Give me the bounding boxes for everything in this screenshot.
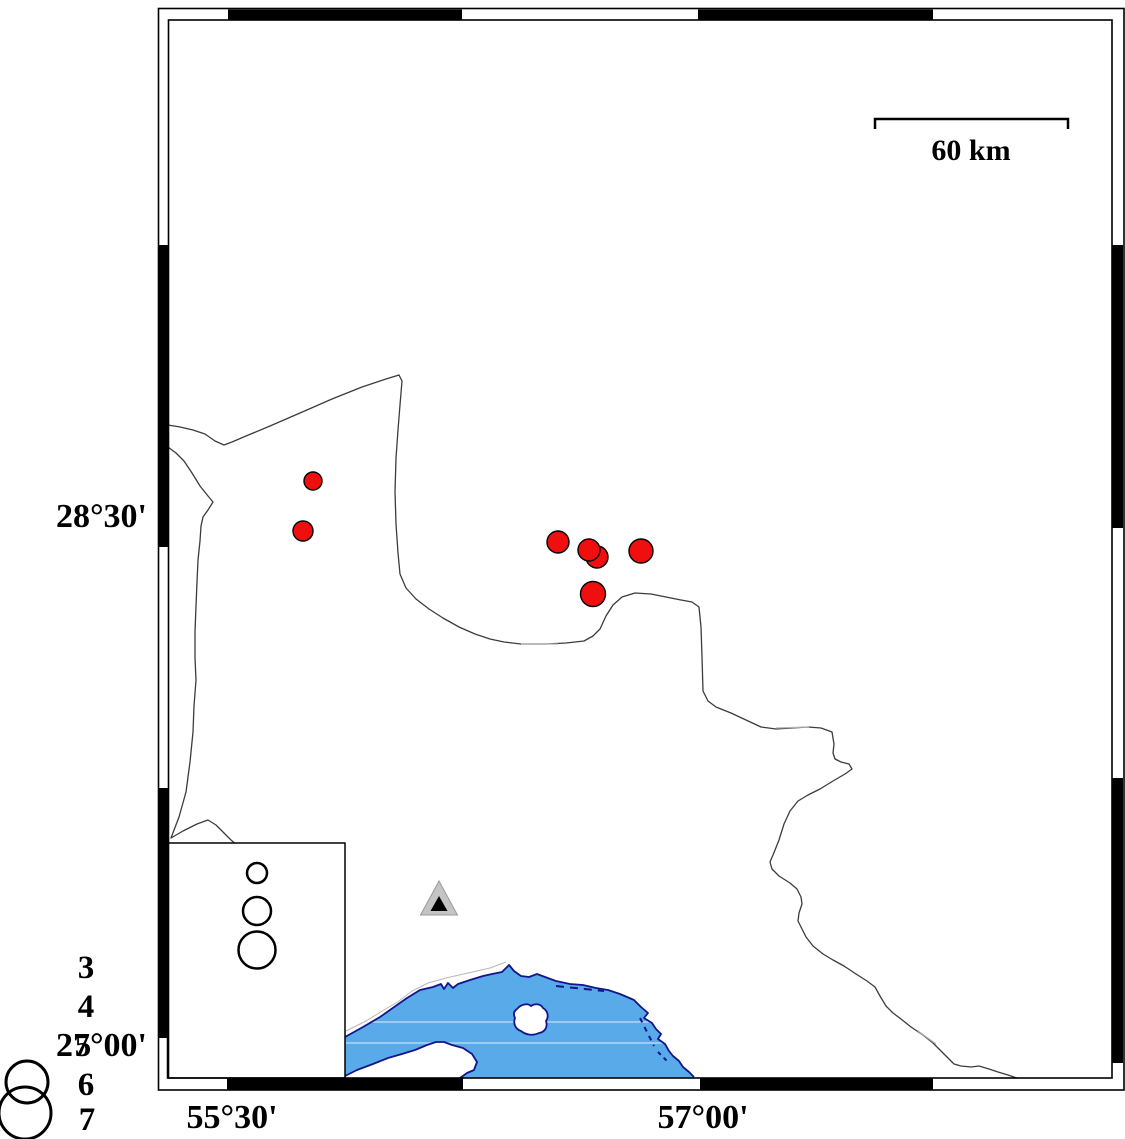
map-canvas: 60 km 3 4 5 6 7 28°30' 27°00' 55°30' 57°… — [0, 0, 1125, 1139]
map-figure: 60 km 3 4 5 6 7 28°30' 27°00' 55°30' 57°… — [0, 0, 1125, 1139]
legend-magnitude-circle — [0, 1087, 51, 1139]
frame-segment — [159, 788, 169, 1038]
frame-segment — [228, 10, 462, 21]
scale-bar-label: 60 km — [931, 134, 1010, 167]
frame-segment — [227, 1079, 463, 1090]
frame-segment — [698, 10, 933, 21]
lon-label-57-00: 57°00' — [657, 1099, 748, 1136]
sea-region — [345, 962, 694, 1078]
earthquake-layer — [293, 472, 653, 607]
scale-bar: 60 km — [875, 119, 1068, 167]
frame-segment — [159, 245, 169, 547]
earthquake-marker — [304, 472, 322, 490]
lon-label-55-30: 55°30' — [186, 1099, 277, 1136]
earthquake-marker — [581, 582, 606, 607]
legend-label-6: 6 — [78, 1067, 95, 1103]
lat-label-28-30: 28°30' — [56, 498, 147, 535]
legend-label-4: 4 — [78, 989, 95, 1025]
station-marker — [421, 881, 458, 915]
scale-bar-line — [875, 119, 1068, 129]
earthquake-marker — [578, 539, 600, 561]
frame-segment — [1112, 245, 1123, 528]
legend-box — [168, 843, 346, 1078]
earthquake-marker — [547, 531, 569, 553]
province-boundary-west — [168, 447, 238, 846]
island — [514, 1004, 548, 1034]
legend-label-7: 7 — [79, 1102, 96, 1138]
earthquake-marker — [293, 521, 313, 541]
frame-segment — [700, 1079, 933, 1090]
lat-label-27-00: 27°00' — [56, 1027, 147, 1064]
legend-label-3: 3 — [78, 950, 95, 986]
earthquake-marker — [629, 539, 653, 563]
boundary-gray-segment — [521, 644, 936, 1044]
frame-segment — [1112, 778, 1123, 1063]
legend-magnitude-circle — [6, 1061, 48, 1103]
